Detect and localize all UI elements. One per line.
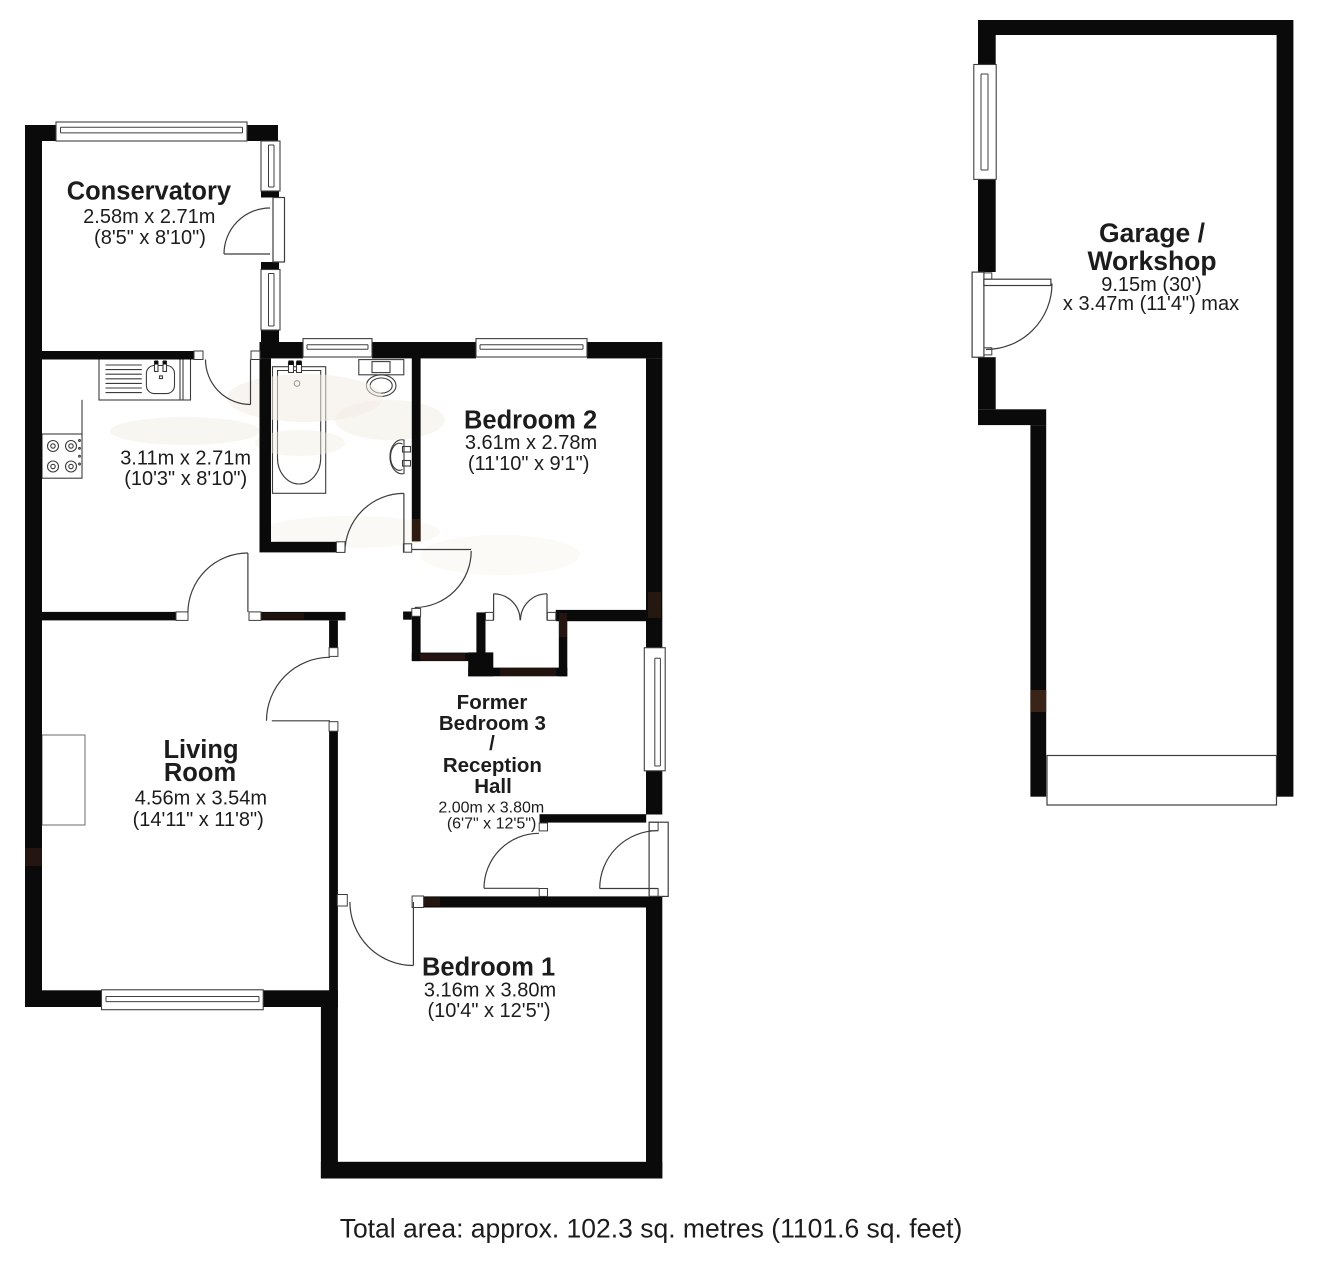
svg-text:Total area: approx. 102.3 sq.: Total area: approx. 102.3 sq. metres (11…	[340, 1214, 963, 1244]
svg-text:Bedroom 1: Bedroom 1	[422, 954, 555, 982]
svg-text:Bedroom 2: Bedroom 2	[464, 407, 597, 435]
svg-text:Garage /: Garage /	[1099, 218, 1206, 248]
svg-text:3.61m x 2.78m: 3.61m x 2.78m	[465, 432, 597, 454]
svg-text:Hall: Hall	[474, 775, 512, 798]
svg-text:Reception: Reception	[443, 754, 542, 777]
svg-text:Room: Room	[164, 759, 236, 787]
svg-text:(8'5" x 8'10"): (8'5" x 8'10")	[94, 227, 206, 249]
svg-text:(11'10" x 9'1"): (11'10" x 9'1")	[468, 453, 590, 475]
svg-text:x 3.47m (11'4") max: x 3.47m (11'4") max	[1063, 293, 1239, 315]
svg-text:/: /	[489, 732, 495, 755]
svg-text:4.56m x 3.54m: 4.56m x 3.54m	[135, 788, 267, 810]
svg-text:(10'4" x 12'5"): (10'4" x 12'5")	[427, 1000, 550, 1022]
svg-text:Workshop: Workshop	[1087, 246, 1216, 276]
svg-text:(14'11" x 11'8"): (14'11" x 11'8")	[133, 809, 264, 831]
svg-text:Former: Former	[457, 691, 528, 714]
svg-text:3.16m x 3.80m: 3.16m x 3.80m	[424, 980, 556, 1002]
svg-text:(10'3" x 8'10"): (10'3" x 8'10")	[124, 468, 247, 490]
svg-text:2.00m x 3.80m: 2.00m x 3.80m	[438, 800, 544, 817]
svg-text:Conservatory: Conservatory	[67, 178, 232, 206]
svg-text:(6'7" x 12'5"): (6'7" x 12'5")	[447, 816, 537, 833]
svg-text:2.58m x 2.71m: 2.58m x 2.71m	[83, 206, 215, 228]
svg-text:3.11m x 2.71m: 3.11m x 2.71m	[120, 448, 251, 470]
